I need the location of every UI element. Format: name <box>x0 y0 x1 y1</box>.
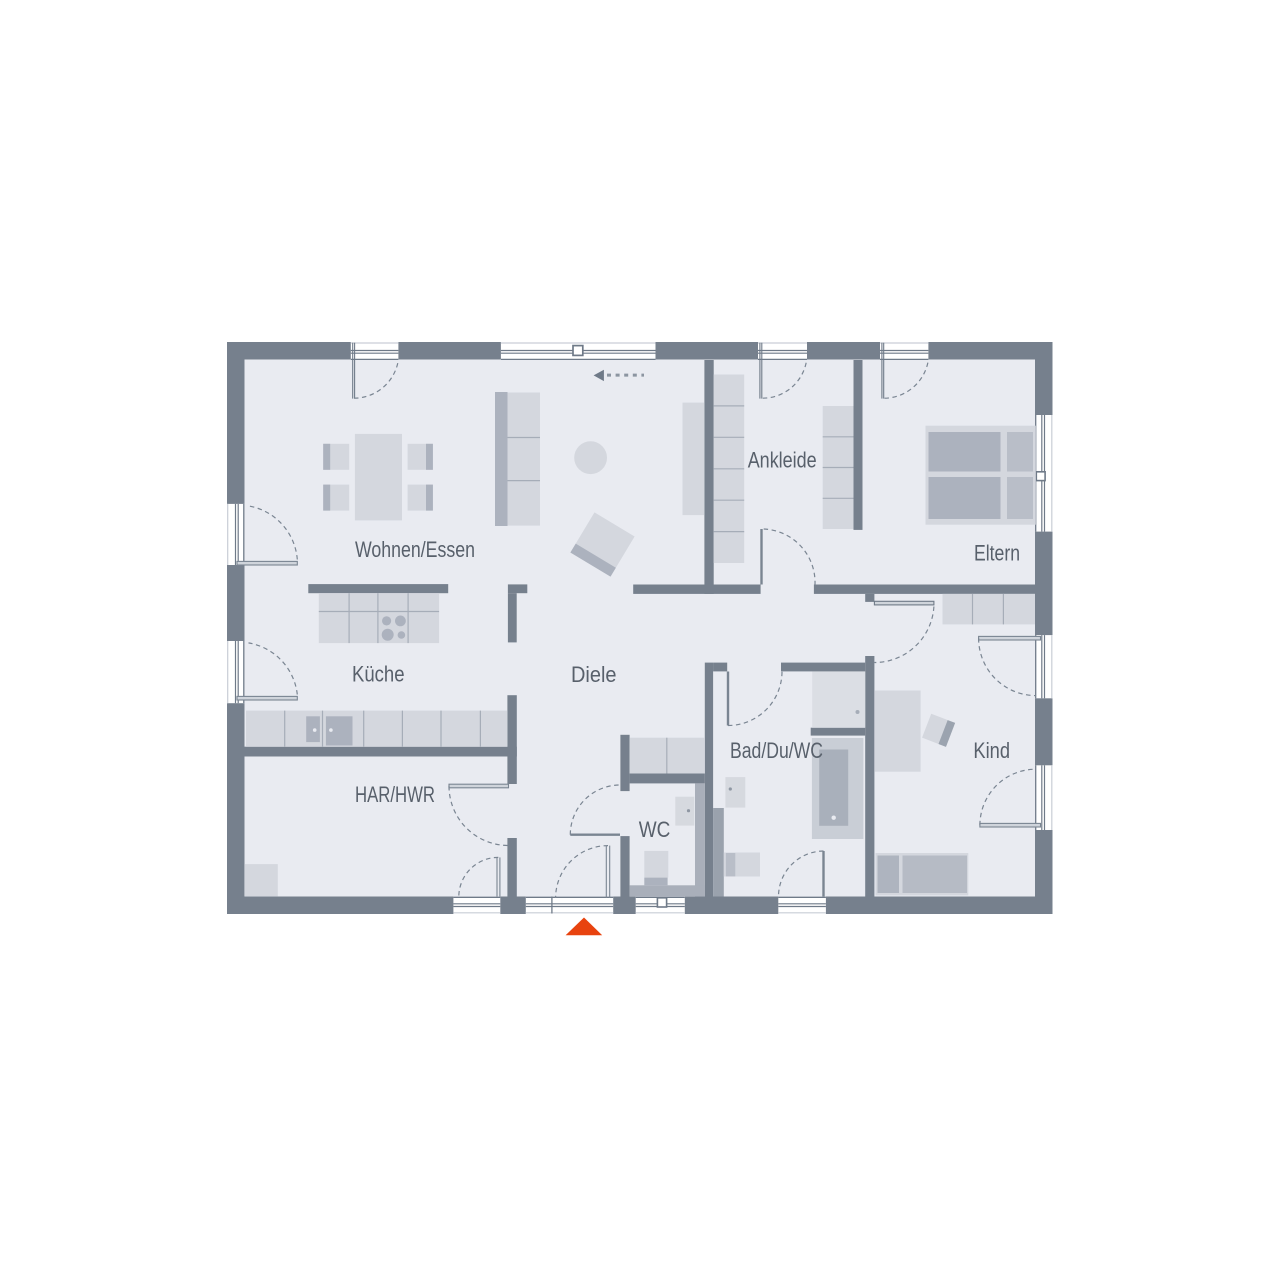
svg-text:Küche: Küche <box>352 662 405 687</box>
svg-text:Eltern: Eltern <box>974 540 1020 565</box>
svg-text:HAR/HWR: HAR/HWR <box>355 782 435 807</box>
svg-text:Kind: Kind <box>973 738 1010 763</box>
svg-text:Diele: Diele <box>571 662 617 687</box>
svg-text:Ankleide: Ankleide <box>748 447 817 472</box>
svg-text:Bad/Du/WC: Bad/Du/WC <box>730 738 823 763</box>
svg-text:Wohnen/Essen: Wohnen/Essen <box>355 537 475 562</box>
svg-text:WC: WC <box>639 817 671 842</box>
